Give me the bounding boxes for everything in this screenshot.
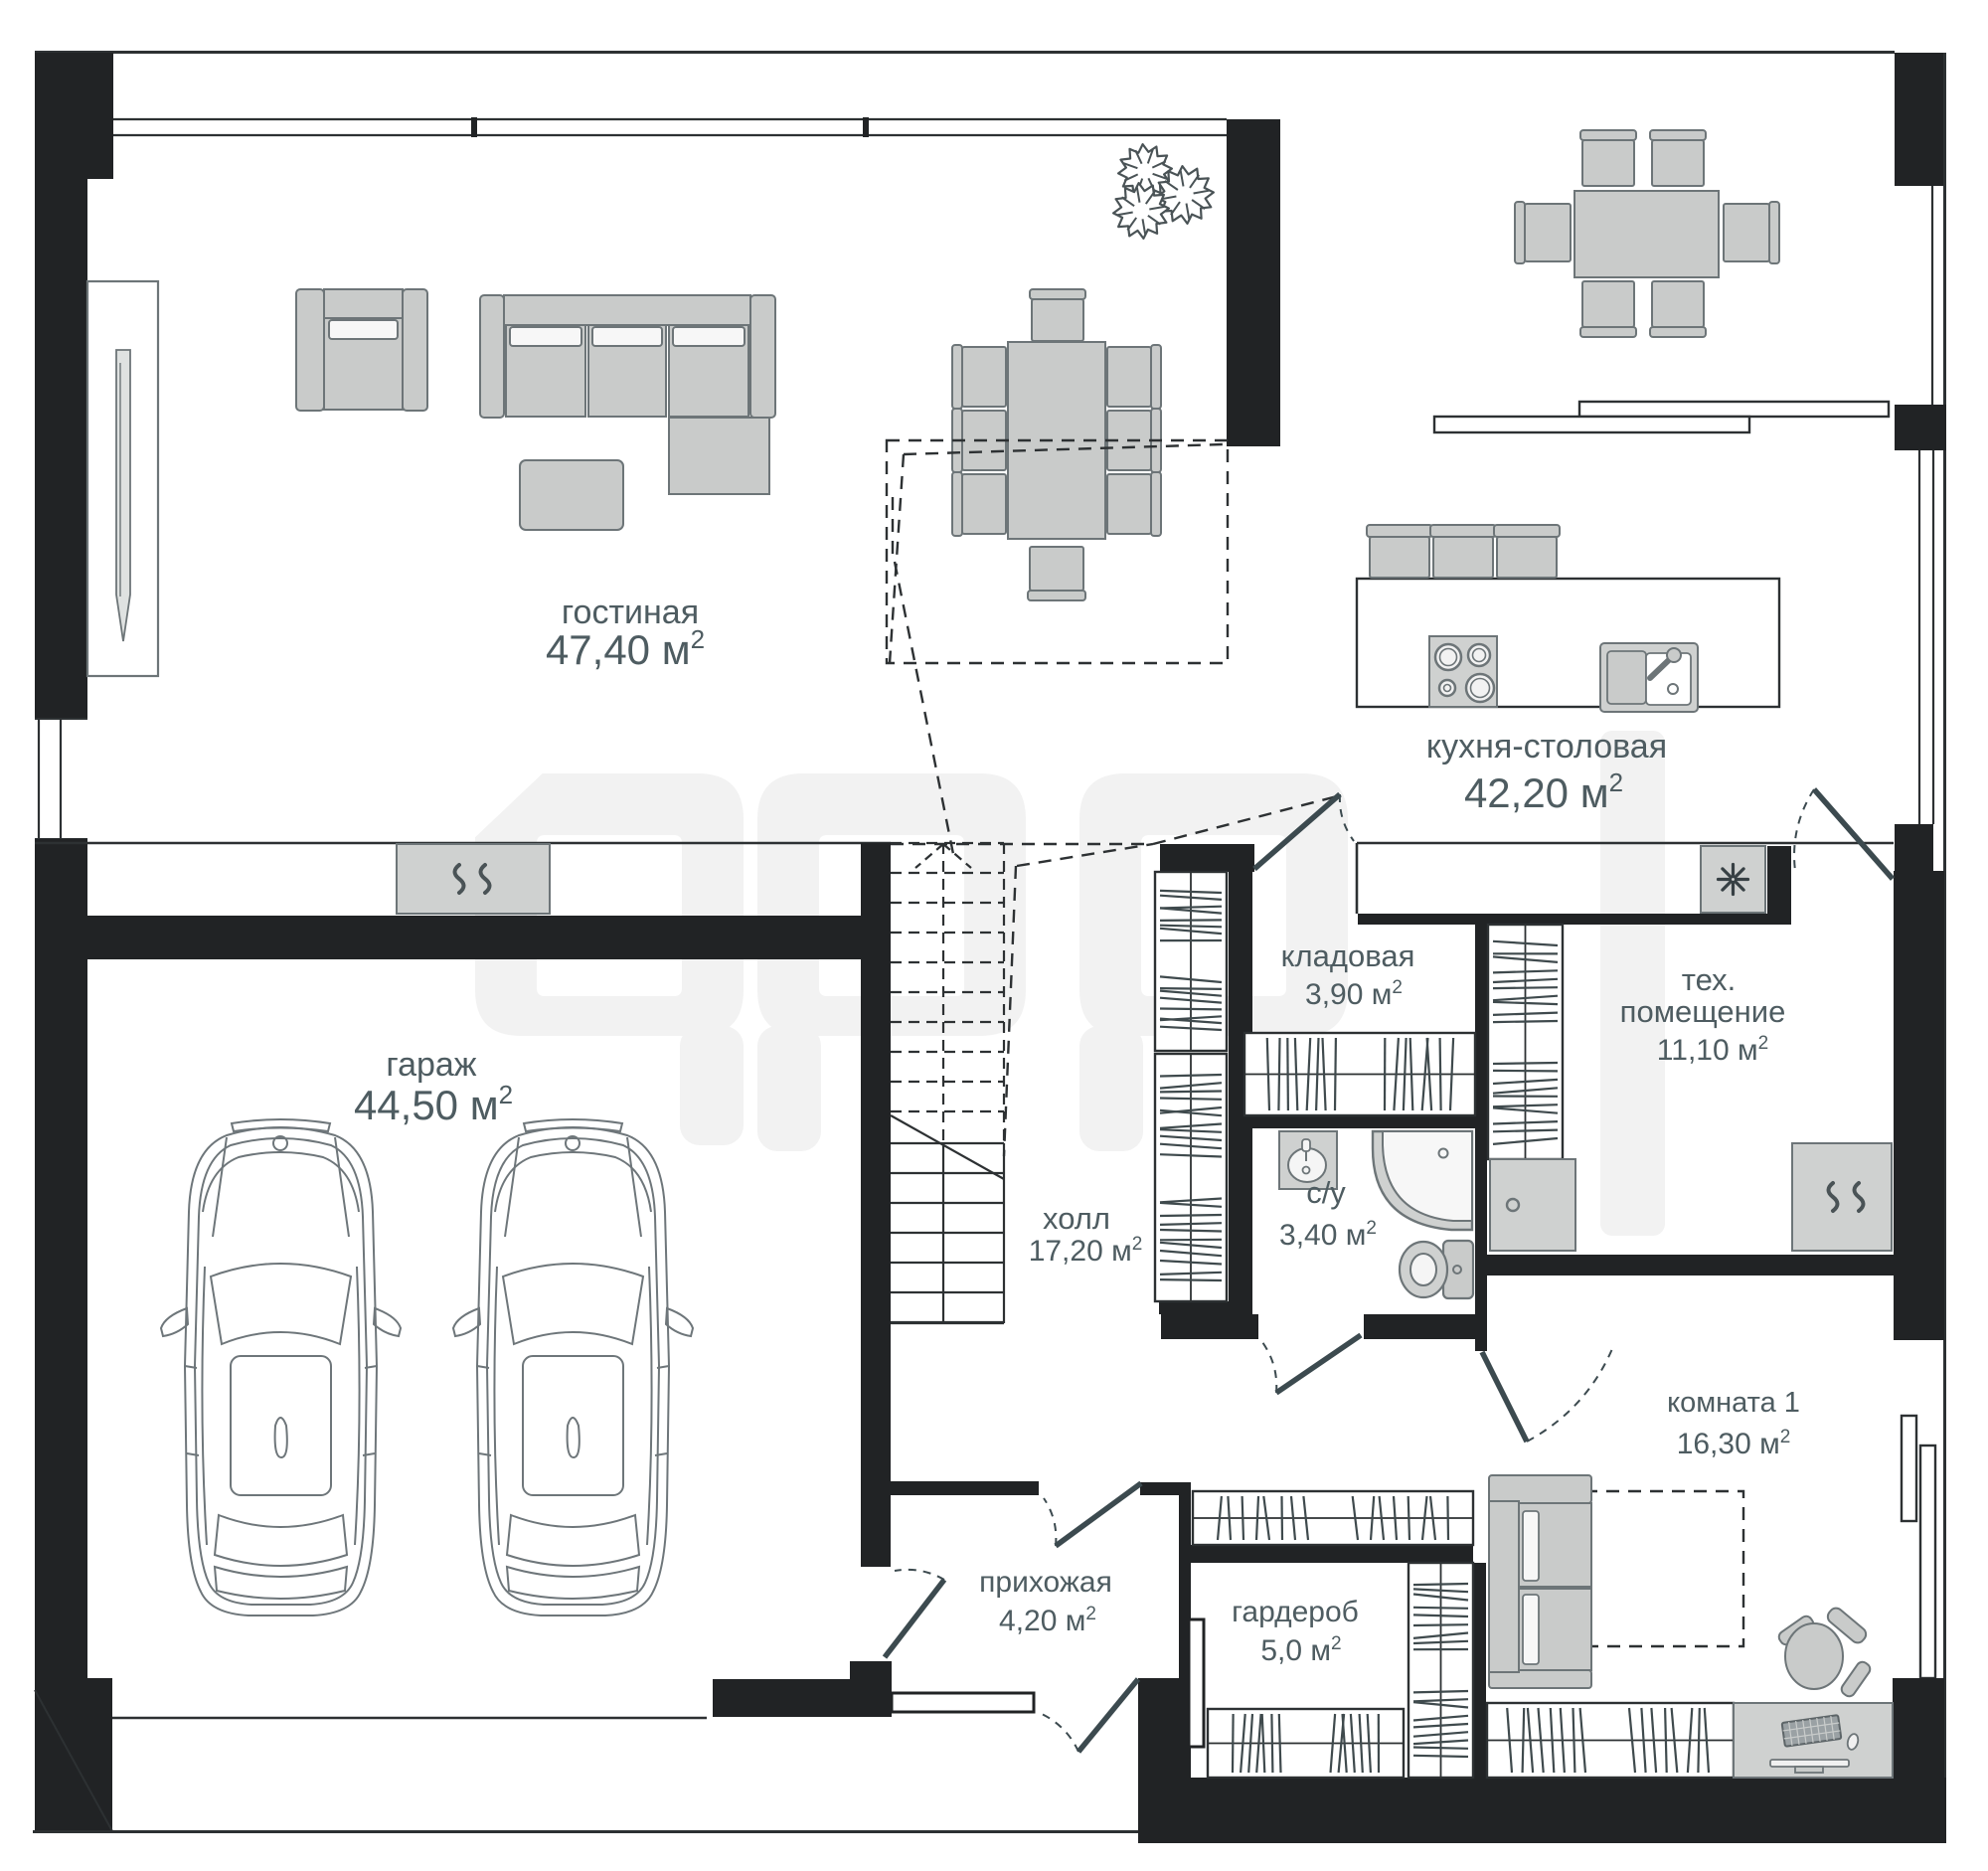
svg-text:прихожая: прихожая [979,1566,1112,1599]
svg-text:11,10 м2: 11,10 м2 [1657,1033,1768,1067]
svg-text:комната 1: комната 1 [1667,1387,1800,1419]
svg-text:4,20 м2: 4,20 м2 [999,1604,1096,1637]
svg-text:гараж: гараж [386,1046,476,1084]
svg-text:кладовая: кладовая [1281,938,1415,973]
svg-text:гардероб: гардероб [1232,1596,1359,1628]
svg-text:17,20 м2: 17,20 м2 [1029,1234,1143,1268]
svg-text:44,50 м2: 44,50 м2 [354,1080,513,1128]
svg-text:холл: холл [1043,1201,1110,1236]
svg-text:3,40 м2: 3,40 м2 [1279,1218,1377,1252]
svg-text:3,90 м2: 3,90 м2 [1305,977,1403,1011]
svg-text:кухня-столовая: кухня-столовая [1426,728,1667,765]
svg-text:5,0 м2: 5,0 м2 [1260,1633,1341,1667]
svg-text:с/у: с/у [1306,1175,1346,1210]
svg-text:тех.: тех. [1682,962,1737,997]
svg-text:16,30 м2: 16,30 м2 [1677,1427,1791,1460]
svg-text:помещение: помещение [1620,994,1786,1029]
svg-text:42,20 м2: 42,20 м2 [1464,767,1623,816]
svg-text:47,40 м2: 47,40 м2 [546,624,705,673]
